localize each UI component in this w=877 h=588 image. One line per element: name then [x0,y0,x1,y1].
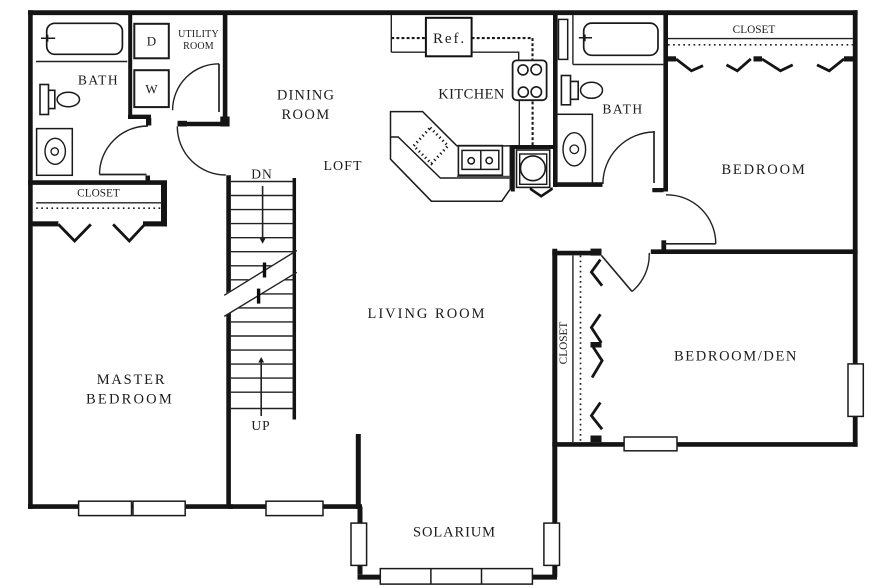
svg-text:DINING: DINING [277,88,335,104]
svg-text:UP: UP [251,418,270,433]
svg-text:BATH: BATH [78,73,119,88]
svg-text:ROOM: ROOM [281,107,330,123]
svg-text:LIVING ROOM: LIVING ROOM [367,306,486,322]
svg-text:UTILITY: UTILITY [178,29,219,40]
svg-text:ROOM: ROOM [183,41,214,52]
svg-text:KITCHEN: KITCHEN [438,86,505,102]
svg-text:CLOSET: CLOSET [558,322,570,365]
svg-text:DN: DN [251,167,273,182]
svg-text:D: D [147,34,156,49]
svg-text:SOLARIUM: SOLARIUM [413,525,496,541]
svg-text:LOFT: LOFT [324,159,363,174]
svg-text:MASTER: MASTER [97,372,167,388]
svg-text:BEDROOM: BEDROOM [86,391,174,407]
svg-text:BEDROOM: BEDROOM [721,162,806,178]
svg-text:Ref.: Ref. [433,31,466,47]
svg-text:W: W [145,82,158,97]
svg-text:BATH: BATH [602,102,643,117]
svg-text:CLOSET: CLOSET [733,24,776,36]
svg-text:CLOSET: CLOSET [77,188,120,200]
svg-text:BEDROOM/DEN: BEDROOM/DEN [674,349,798,365]
